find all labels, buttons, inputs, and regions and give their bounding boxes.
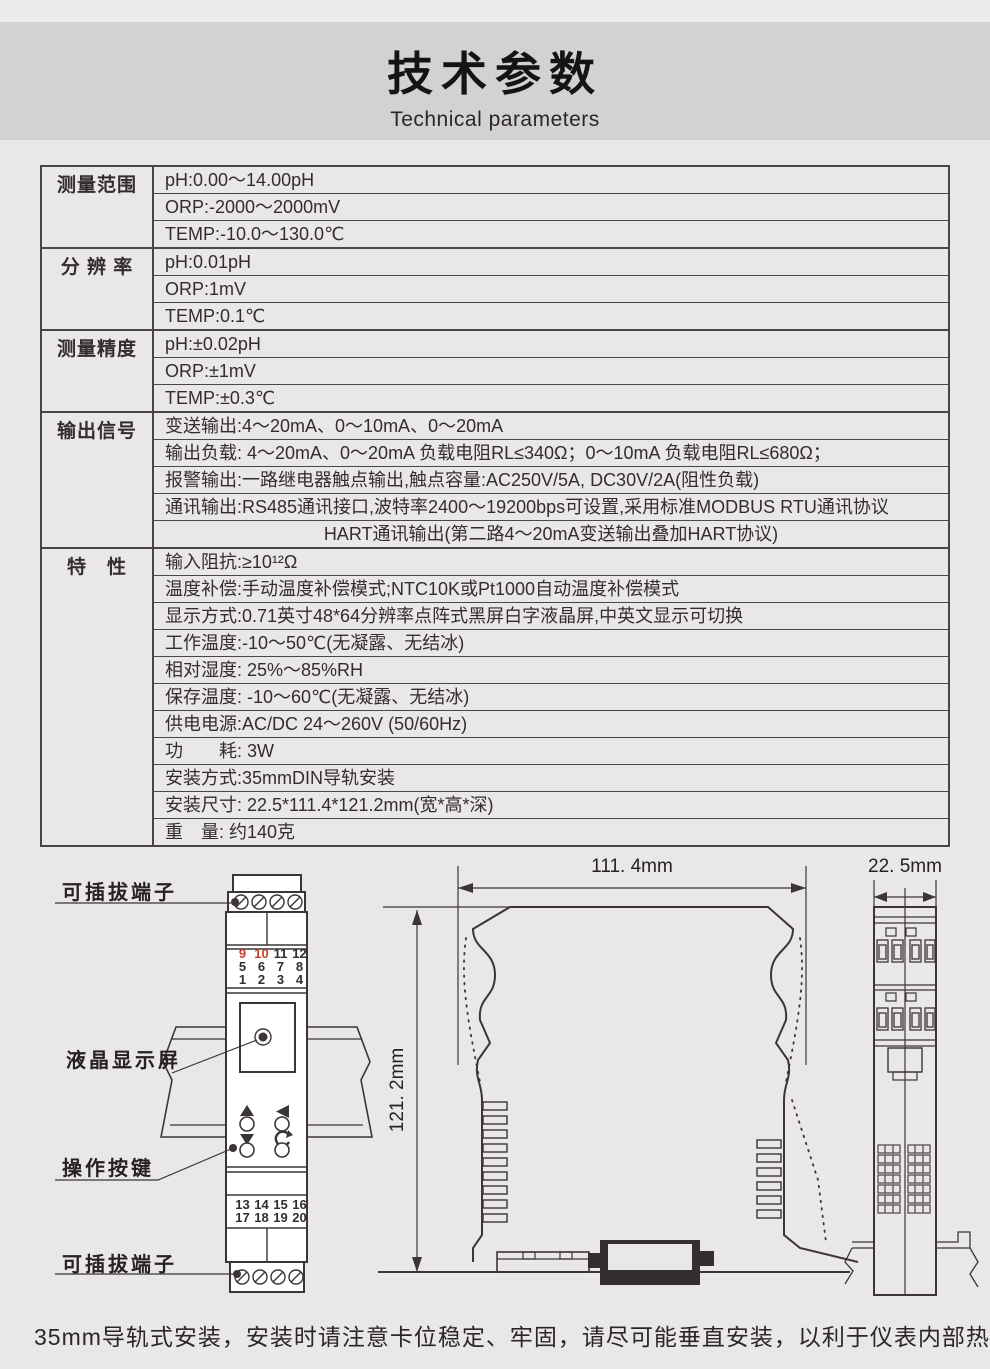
spec-row: TEMP:±0.3℃ <box>154 385 948 411</box>
terminal-number: 19 <box>271 1211 290 1224</box>
installation-diagram: 可插拔端子 液晶显示屏 操作按键 可插拔端子 111. 4mm 121. 2mm… <box>0 850 990 1320</box>
spec-row: HART通讯输出(第二路4～20mA变送输出叠加HART协议) <box>154 521 948 547</box>
rail-cross-section <box>845 1232 978 1287</box>
spec-group-output-signal: 输出信号 变送输出:4～20mA、0～10mA、0～20mA 输出负载: 4～2… <box>42 413 948 549</box>
spec-row: pH:±0.02pH <box>154 331 948 358</box>
spec-group-resolution: 分 辨 率 pH:0.01pH ORP:1mV TEMP:0.1℃ <box>42 249 948 331</box>
spec-group-measure-range: 测量范围 pH:0.00～14.00pH ORP:-2000～2000mV TE… <box>42 167 948 249</box>
page: 技术参数 Technical parameters 测量范围 pH:0.00～1… <box>0 0 990 1369</box>
spec-row: 变送输出:4～20mA、0～10mA、0～20mA <box>154 413 948 440</box>
dimension-depth-label: 121. 2mm <box>387 1040 407 1140</box>
spec-group-features: 特 性 输入阻抗:≥10¹²Ω 温度补偿:手动温度补偿模式;NTC10K或Pt1… <box>42 549 948 845</box>
spec-row: 输出负载: 4～20mA、0～20mA 负载电阻RL≤340Ω；0～10mA 负… <box>154 440 948 467</box>
front-view-drawing <box>226 875 307 1292</box>
page-title: 技术参数 <box>0 38 990 104</box>
spec-row: TEMP:0.1℃ <box>154 303 948 329</box>
spec-group-accuracy: 测量精度 pH:±0.02pH ORP:±1mV TEMP:±0.3℃ <box>42 331 948 413</box>
spec-row: 安装方式:35mmDIN导轨安装 <box>154 765 948 792</box>
din-clip <box>588 1240 714 1285</box>
spec-row: TEMP:-10.0～130.0℃ <box>154 221 948 247</box>
spec-row: 通讯输出:RS485通讯接口,波特率2400～19200bps可设置,采用标准M… <box>154 494 948 521</box>
top-view-drawing <box>845 888 978 1295</box>
spec-row: 功 耗: 3W <box>154 738 948 765</box>
terminal-number: 2 <box>252 973 271 986</box>
depth-dimension <box>412 910 422 1272</box>
terminal-number: 20 <box>290 1211 309 1224</box>
vent-grid <box>878 1145 930 1213</box>
header-banner: 技术参数 Technical parameters <box>0 22 990 140</box>
spec-row: 相对湿度: 25%～85%RH <box>154 657 948 684</box>
terminal-number: 4 <box>290 973 309 986</box>
top-strip <box>0 0 990 22</box>
terminal-number: 1 <box>233 973 252 986</box>
dimension-width-label: 111. 4mm <box>562 856 702 878</box>
terminal-numbers-top: 9 10 11 12 5 6 7 8 1 2 3 4 <box>228 947 308 986</box>
spec-row: 保存温度: -10～60℃(无凝露、无结冰) <box>154 684 948 711</box>
spec-row: 工作温度:-10～50℃(无凝露、无结冰) <box>154 630 948 657</box>
label-lcd-display: 液晶显示屏 <box>66 1044 181 1073</box>
spec-group-label: 分 辨 率 <box>42 249 154 329</box>
spec-row: 显示方式:0.71英寸48*64分辨率点阵式黑屏白字液晶屏,中英文显示可切换 <box>154 603 948 630</box>
dimension-side-width-label: 22. 5mm <box>860 856 950 878</box>
spec-table: 测量范围 pH:0.00～14.00pH ORP:-2000～2000mV TE… <box>40 165 950 847</box>
spec-row: pH:0.00～14.00pH <box>154 167 948 194</box>
spec-row: 报警输出:一路继电器触点输出,触点容量:AC250V/5A, DC30V/2A(… <box>154 467 948 494</box>
terminal-row-2 <box>877 1008 935 1030</box>
spec-row: ORP:±1mV <box>154 358 948 385</box>
spec-row: 安装尺寸: 22.5*111.4*121.2mm(宽*高*深) <box>154 792 948 819</box>
mount-foot <box>497 1252 589 1272</box>
terminal-number: 17 <box>233 1211 252 1224</box>
terminal-numbers-bottom: 13 14 15 16 17 18 19 20 <box>228 1198 308 1224</box>
label-pluggable-terminal-bottom: 可插拔端子 <box>62 1248 177 1277</box>
width-dimension <box>383 866 806 1065</box>
spec-group-label: 测量精度 <box>42 331 154 411</box>
terminal-row-1 <box>877 940 935 962</box>
spec-group-label: 测量范围 <box>42 167 154 247</box>
label-operation-keys: 操作按键 <box>62 1152 154 1181</box>
terminal-number: 3 <box>271 973 290 986</box>
side-view-drawing <box>378 907 858 1285</box>
spec-row: 重 量: 约140克 <box>154 819 948 845</box>
installation-note: 35mm导轨式安装，安装时请注意卡位稳定、牢固，请尽可能垂直安装，以利于仪表内部… <box>34 1318 990 1352</box>
spec-row: ORP:1mV <box>154 276 948 303</box>
vent-slots-right <box>757 1140 781 1218</box>
vent-slots-left <box>483 1102 507 1222</box>
spec-row: ORP:-2000～2000mV <box>154 194 948 221</box>
spec-group-label: 特 性 <box>42 549 154 845</box>
terminal-number: 18 <box>252 1211 271 1224</box>
spec-row: 供电电源:AC/DC 24～260V (50/60Hz) <box>154 711 948 738</box>
label-pluggable-terminal-top: 可插拔端子 <box>62 876 177 905</box>
spec-row: 输入阻抗:≥10¹²Ω <box>154 549 948 576</box>
page-subtitle: Technical parameters <box>0 108 990 132</box>
spec-row: 温度补偿:手动温度补偿模式;NTC10K或Pt1000自动温度补偿模式 <box>154 576 948 603</box>
spec-row: pH:0.01pH <box>154 249 948 276</box>
spec-group-label: 输出信号 <box>42 413 154 547</box>
